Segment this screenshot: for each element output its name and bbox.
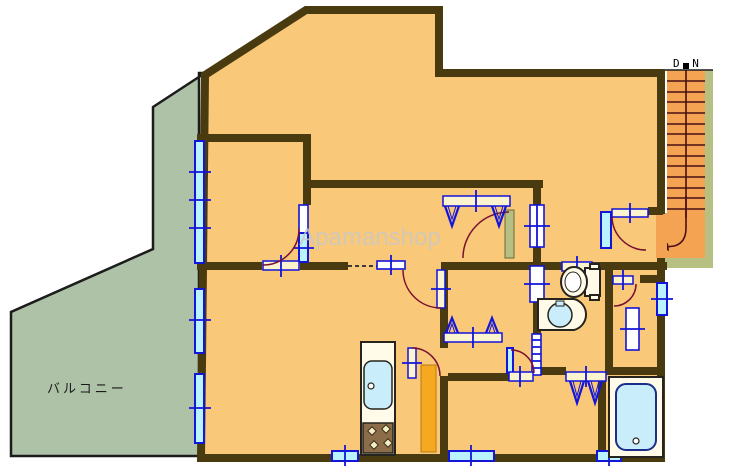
- entry-gap: [656, 214, 667, 258]
- window-icon: [195, 289, 204, 353]
- wall-segment: [197, 134, 310, 142]
- wall-segment: [648, 207, 663, 215]
- wall-segment: [303, 134, 311, 205]
- floor-plan-page: バルコニー D N: [0, 0, 742, 466]
- floor-plan-canvas: バルコニー D N: [0, 0, 742, 466]
- dn-marker-square: [683, 63, 689, 69]
- watermark: Apamanshop: [299, 224, 440, 251]
- toilet: [561, 264, 600, 300]
- kitchen-counter-accent: [421, 365, 436, 452]
- faucet-icon: [368, 383, 374, 389]
- wall-segment: [300, 262, 348, 270]
- wall-segment: [606, 367, 663, 375]
- bathroom: [609, 377, 663, 457]
- wall-segment: [440, 376, 448, 458]
- wall-segment: [303, 180, 543, 188]
- wall-segment: [441, 262, 533, 270]
- wall-segment: [533, 180, 541, 207]
- balcony-label: バルコニー: [47, 382, 127, 397]
- wall-segment: [448, 373, 509, 381]
- wall-segment: [605, 270, 613, 375]
- washbasin-icon: [548, 303, 572, 327]
- drain-icon: [633, 438, 639, 444]
- window-icon: [195, 141, 204, 263]
- stair-trim-right: [705, 70, 713, 268]
- balcony-area: バルコニー: [11, 73, 205, 456]
- wall-segment: [640, 275, 663, 283]
- wall-segment: [592, 262, 667, 270]
- entry-sidelite: [601, 212, 611, 248]
- balcony-outline: [11, 73, 205, 456]
- wall-segment: [197, 262, 262, 270]
- washbasin: [538, 299, 586, 330]
